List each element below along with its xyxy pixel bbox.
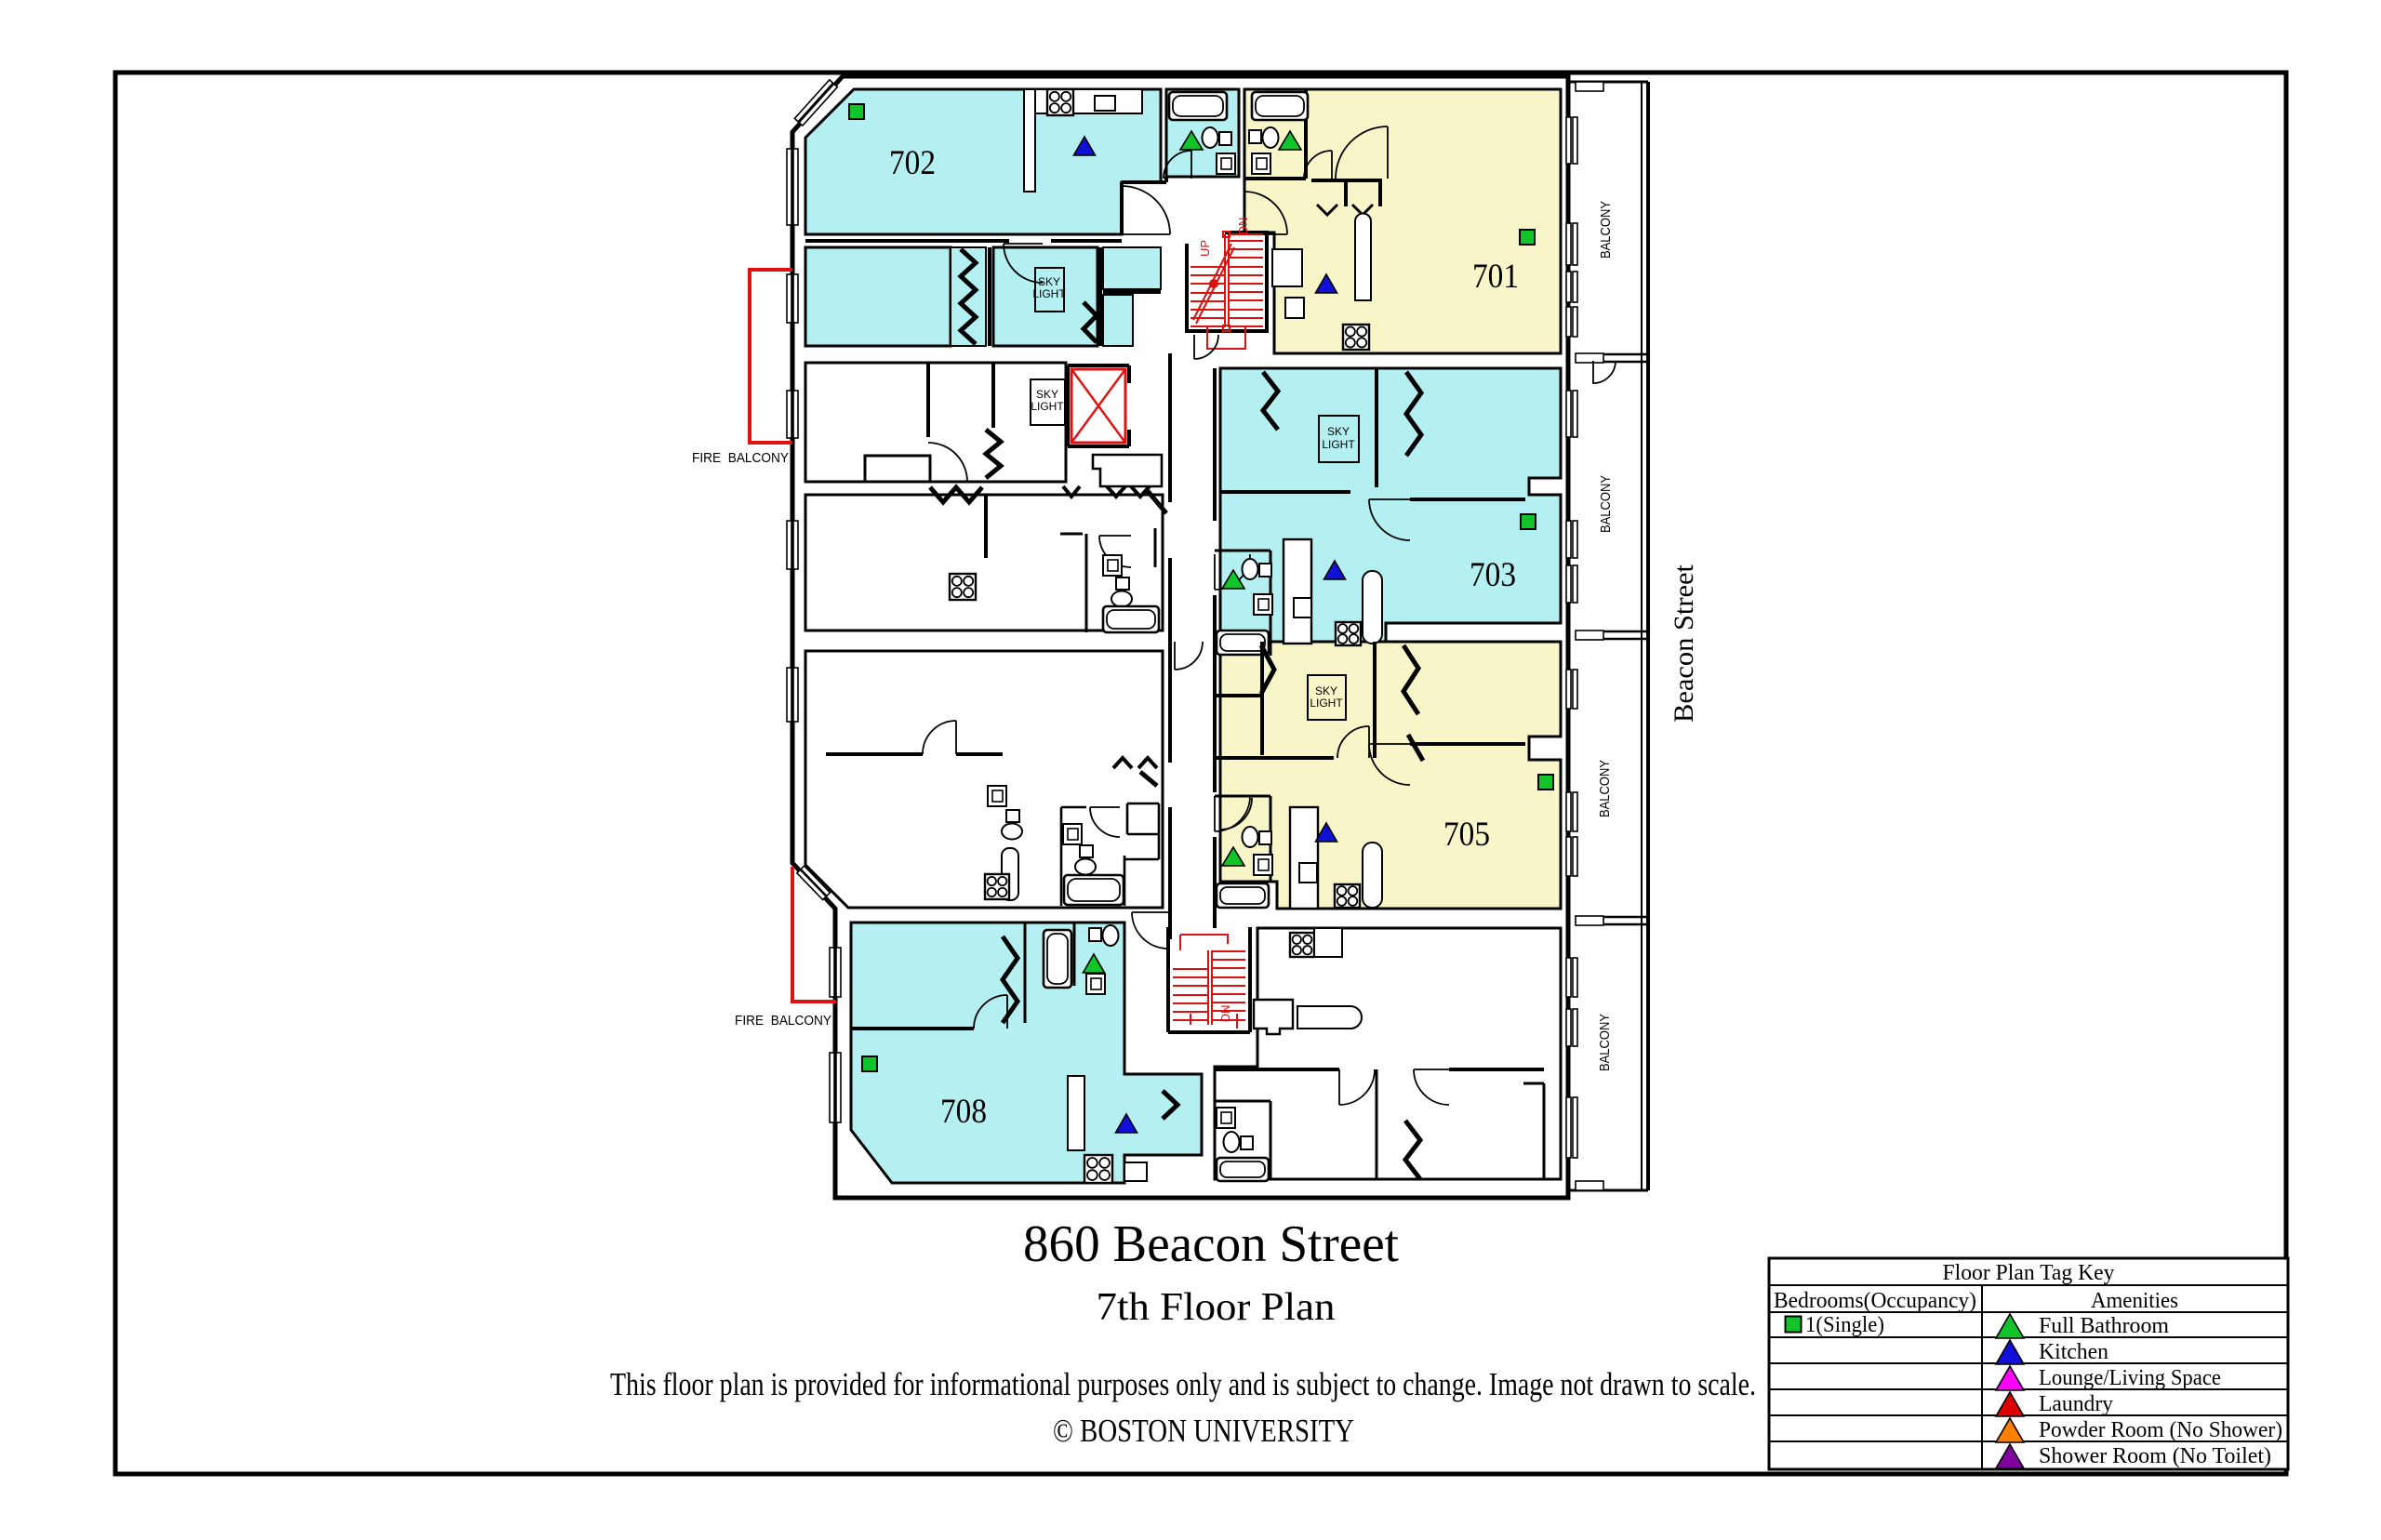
svg-text:7th Floor Plan: 7th Floor Plan [1097, 1286, 1336, 1329]
svg-text:LIGHT: LIGHT [1310, 697, 1343, 710]
svg-text:FIRE BALCONY: FIRE BALCONY [735, 1013, 831, 1029]
svg-text:SKY: SKY [1036, 388, 1058, 401]
svg-text:705: 705 [1443, 816, 1490, 854]
svg-text:Lounge/Living Space: Lounge/Living Space [2039, 1366, 2221, 1390]
svg-text:860 Beacon Street: 860 Beacon Street [1023, 1215, 1399, 1273]
svg-text:1(Single): 1(Single) [1805, 1313, 1884, 1337]
svg-text:702: 702 [889, 144, 936, 182]
svg-text:© BOSTON UNIVERSITY: © BOSTON UNIVERSITY [1053, 1413, 1354, 1449]
svg-text:DN: DN [1218, 1005, 1232, 1023]
svg-text:BALCONY: BALCONY [1598, 475, 1614, 533]
svg-text:Laundry: Laundry [2039, 1392, 2113, 1416]
svg-text:708: 708 [940, 1093, 987, 1131]
svg-text:This floor plan is provided fo: This floor plan is provided for informat… [610, 1366, 1756, 1402]
svg-text:FIRE BALCONY: FIRE BALCONY [692, 450, 789, 466]
svg-text:LIGHT: LIGHT [1032, 287, 1066, 300]
svg-text:LIGHT: LIGHT [1322, 438, 1355, 451]
svg-text:Powder Room (No Shower): Powder Room (No Shower) [2039, 1418, 2282, 1442]
svg-text:Amenities: Amenities [2091, 1289, 2178, 1313]
svg-text:Floor Plan Tag Key: Floor Plan Tag Key [1943, 1261, 2115, 1285]
svg-text:DN: DN [1236, 218, 1250, 235]
svg-text:Shower Room (No Toilet): Shower Room (No Toilet) [2039, 1444, 2271, 1468]
svg-text:Beacon Street: Beacon Street [1669, 564, 1699, 723]
svg-text:SKY: SKY [1315, 684, 1337, 697]
svg-text:Kitchen: Kitchen [2039, 1340, 2108, 1364]
svg-text:UP: UP [1198, 240, 1212, 257]
svg-text:SKY: SKY [1327, 425, 1350, 438]
svg-text:Bedrooms(Occupancy): Bedrooms(Occupancy) [1774, 1289, 1976, 1313]
svg-text:BALCONY: BALCONY [1597, 1014, 1613, 1071]
svg-text:BALCONY: BALCONY [1598, 201, 1614, 259]
svg-text:Full Bathroom: Full Bathroom [2039, 1314, 2169, 1338]
svg-text:SKY: SKY [1038, 275, 1060, 288]
svg-text:703: 703 [1470, 556, 1516, 594]
svg-text:701: 701 [1472, 258, 1519, 296]
svg-text:BALCONY: BALCONY [1597, 760, 1613, 817]
svg-text:LIGHT: LIGHT [1031, 400, 1064, 413]
